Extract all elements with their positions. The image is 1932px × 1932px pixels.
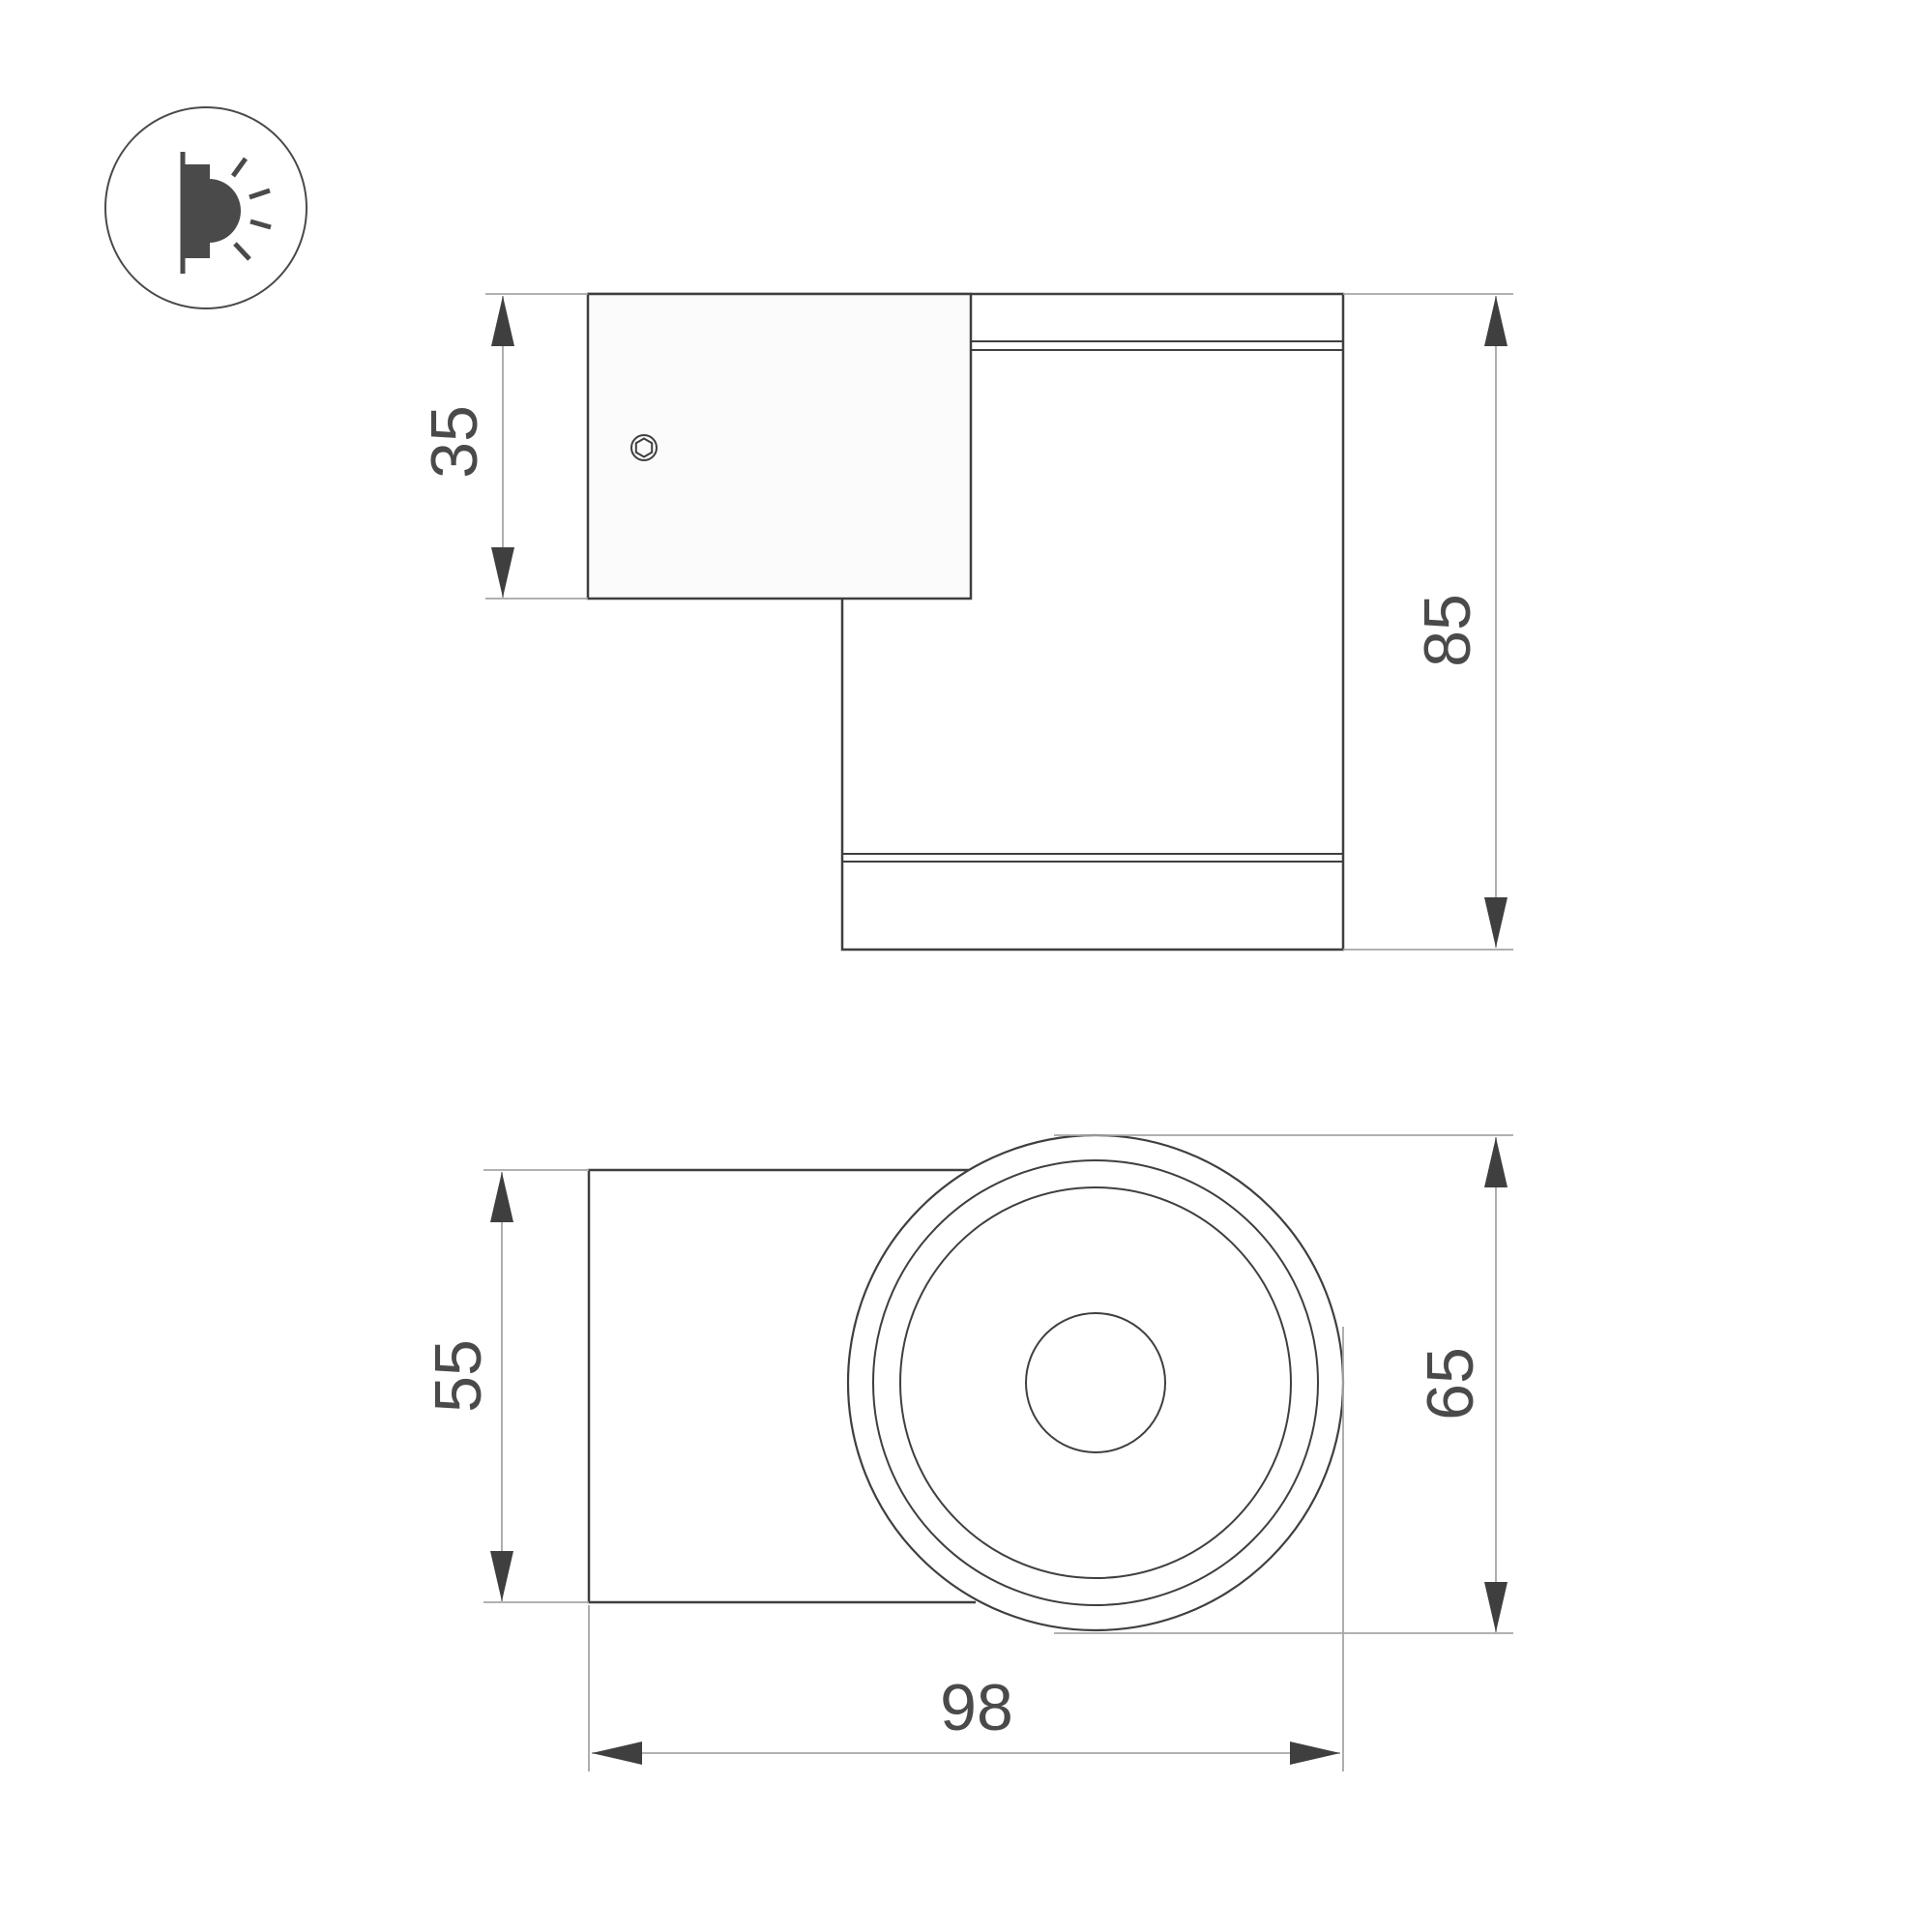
front-view: 55 65 98 xyxy=(422,1135,1513,1771)
arrow-down-icon xyxy=(1484,897,1508,948)
arrow-up-icon xyxy=(490,1172,513,1222)
arrow-down-icon xyxy=(1484,1582,1508,1632)
arrow-up-icon xyxy=(1484,1137,1508,1187)
arrow-right-icon xyxy=(1290,1742,1340,1765)
lens-outer-circle xyxy=(848,1135,1343,1630)
dimension-55: 55 xyxy=(422,1170,589,1602)
dimension-label-35: 35 xyxy=(418,405,491,479)
luminaire-dimension-drawing: 35 85 55 xyxy=(0,0,1932,1932)
dimension-label-85: 85 xyxy=(1411,594,1484,667)
dimension-label-98: 98 xyxy=(940,1671,1013,1744)
arrow-down-icon xyxy=(491,547,514,598)
icon-lamp-body xyxy=(185,164,210,258)
drawing-page: 35 85 55 xyxy=(0,0,1932,1932)
dimension-85: 85 xyxy=(1343,294,1513,950)
dimension-35: 35 xyxy=(418,294,588,599)
mounting-plate xyxy=(588,294,971,599)
arrow-down-icon xyxy=(490,1551,513,1601)
dimension-label-65: 65 xyxy=(1414,1347,1487,1420)
wall-lamp-icon xyxy=(105,107,307,308)
icon-light-beam xyxy=(209,179,241,243)
side-view: 35 85 xyxy=(418,294,1513,950)
arrow-up-icon xyxy=(1484,296,1508,346)
arrow-up-icon xyxy=(491,296,514,346)
arrow-left-icon xyxy=(592,1742,642,1765)
dimension-label-55: 55 xyxy=(422,1339,495,1413)
